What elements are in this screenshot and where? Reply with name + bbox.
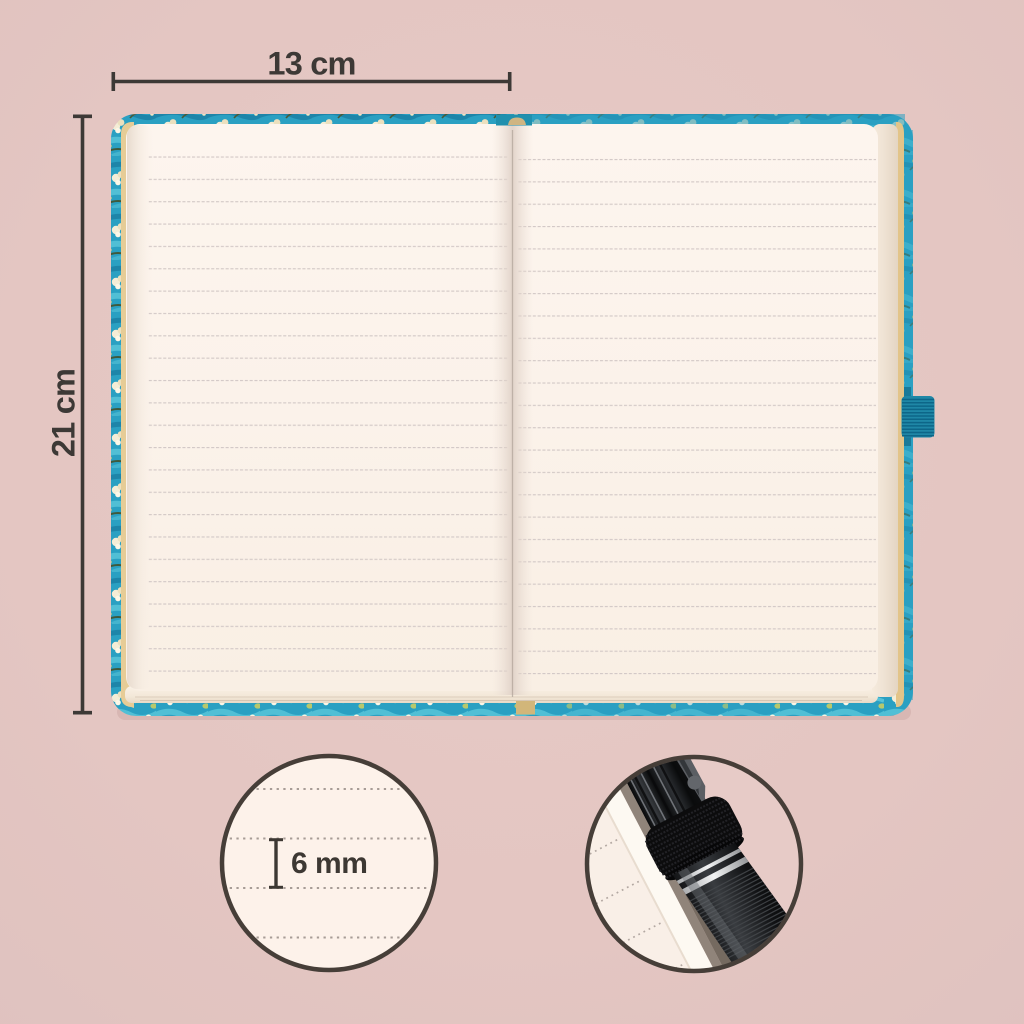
svg-text:6 mm: 6 mm (291, 847, 367, 880)
svg-text:13 cm: 13 cm (267, 46, 355, 82)
svg-text:21 cm: 21 cm (46, 369, 82, 457)
